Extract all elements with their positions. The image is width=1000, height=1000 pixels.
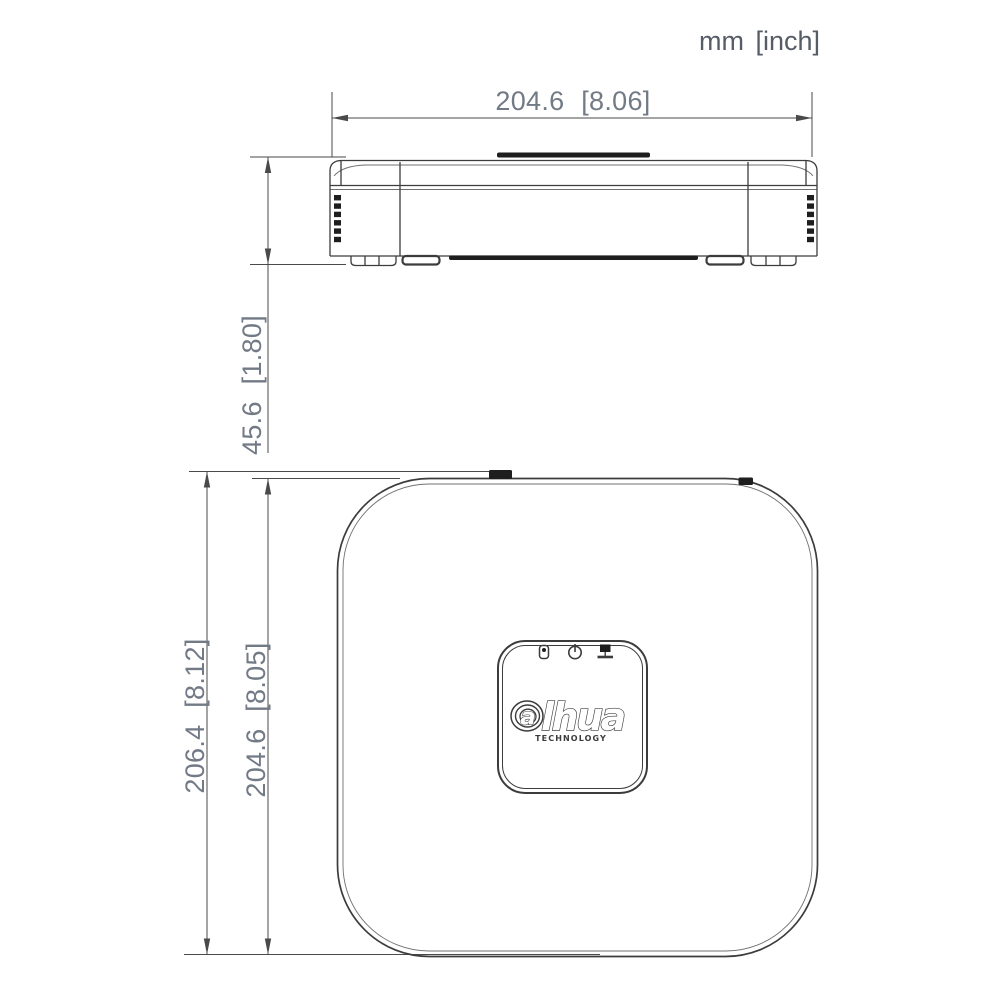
top-overall-depth-dimension-label: 206.4 [8.12] xyxy=(180,631,210,801)
drawing-linework: a lhua TECHNOLOGY xyxy=(0,0,1000,1000)
foot-outer-right xyxy=(751,256,796,266)
arrowhead-up xyxy=(265,157,271,173)
arrowhead-down xyxy=(265,249,271,265)
bottom-recess-strip xyxy=(449,256,698,261)
arrowhead-down xyxy=(265,939,271,955)
foot-outer-left xyxy=(351,256,396,266)
front-width-dimension-label: 204.6 [8.06] xyxy=(423,86,723,116)
top-view: a lhua TECHNOLOGY xyxy=(338,470,818,957)
power-icon xyxy=(569,644,581,659)
logo-wordmark: lhua xyxy=(541,695,625,739)
arrowhead-down xyxy=(204,939,210,955)
front-view xyxy=(330,153,817,266)
arrowhead-left xyxy=(332,115,348,121)
foot-inner-right xyxy=(707,256,744,265)
network-icon xyxy=(598,645,614,658)
rear-tab-right xyxy=(739,478,754,486)
logo-letter-a: a xyxy=(520,705,536,731)
arrowhead-right xyxy=(796,115,812,121)
arrowhead-up xyxy=(204,472,210,488)
top-slot-strip xyxy=(497,153,650,158)
foot-inner-left xyxy=(403,256,440,265)
logo-subtitle: TECHNOLOGY xyxy=(535,734,607,743)
dimension-linework xyxy=(184,92,812,955)
hdd-icon xyxy=(540,646,549,659)
vent-slots-right xyxy=(807,195,814,242)
rear-tab-left xyxy=(489,470,512,479)
front-height-dimension-label: 45.6 [1.80] xyxy=(237,300,267,470)
units-label: mm [inch] xyxy=(640,26,820,57)
dahua-logo: a lhua TECHNOLOGY xyxy=(511,695,625,743)
lid-top-face-line xyxy=(334,165,813,176)
top-body-depth-dimension-label: 204.6 [8.05] xyxy=(241,635,271,805)
vent-slots-left xyxy=(334,195,341,242)
arrowhead-up xyxy=(265,479,271,495)
dimension-drawing: a lhua TECHNOLOGY mm [inch] 204.6 [8.06]… xyxy=(0,0,1000,1000)
